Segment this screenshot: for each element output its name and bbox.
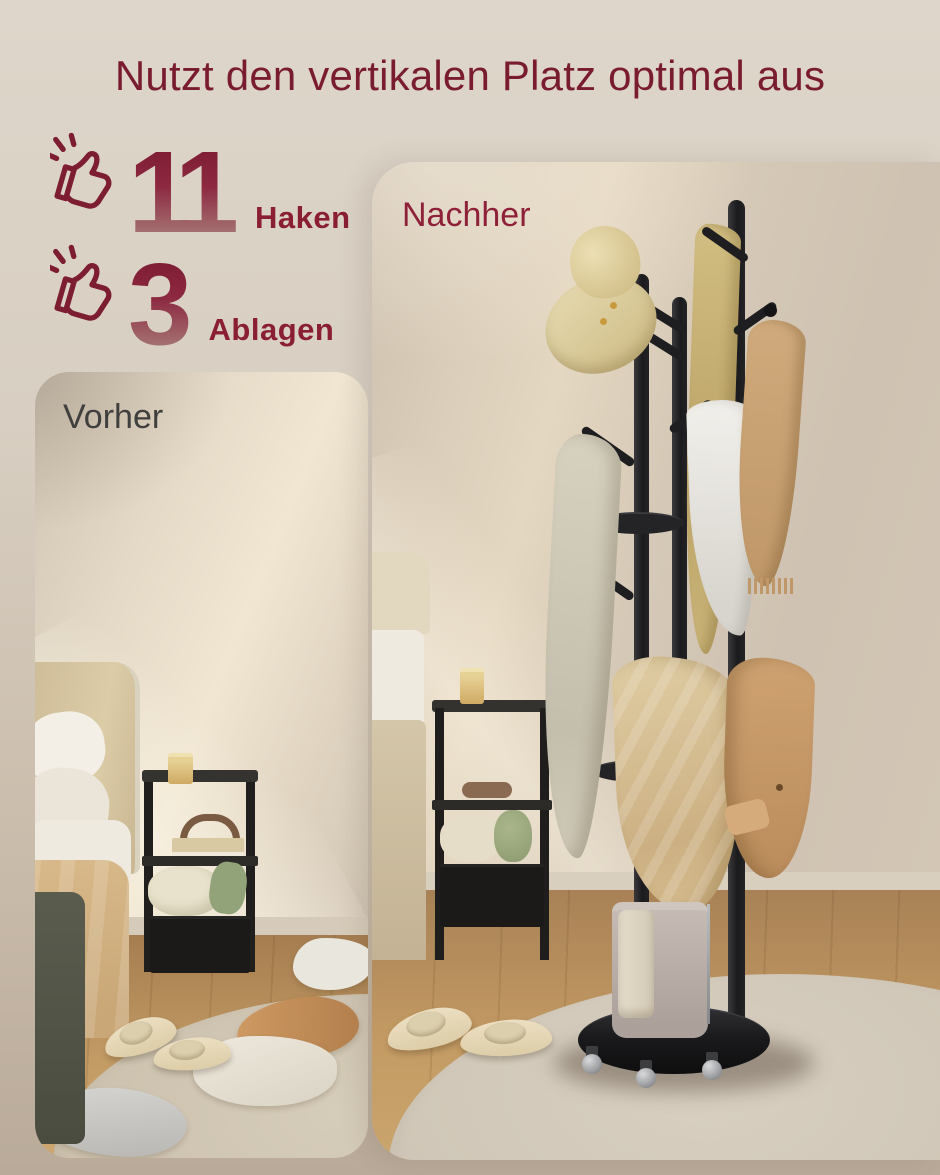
feature-shelves-count: 3 xyxy=(128,251,193,358)
book xyxy=(172,838,244,856)
nightstand-top xyxy=(142,770,258,782)
after-nightstand-shelf xyxy=(432,800,552,810)
headline: Nutzt den vertikalen Platz optimal aus xyxy=(0,52,940,100)
rack-hook-knob xyxy=(764,304,777,317)
coat-button xyxy=(776,784,783,791)
shelf-sandals xyxy=(462,782,512,798)
after-photo: Nachher xyxy=(372,162,940,1160)
before-photo: Vorher xyxy=(35,372,368,1158)
hat-buckle xyxy=(610,302,617,309)
feature-shelves-label: Ablagen xyxy=(209,312,335,348)
feature-hooks-count: 11 xyxy=(128,139,239,246)
bed-throw xyxy=(35,892,85,1144)
nightstand-drawer xyxy=(150,916,250,973)
caster-wheel xyxy=(636,1068,656,1088)
feature-shelves: 3 Ablagen xyxy=(50,240,334,358)
candle xyxy=(460,668,484,704)
before-wall-shadow xyxy=(35,372,235,532)
before-label: Vorher xyxy=(63,398,163,437)
candle xyxy=(168,753,193,784)
towel xyxy=(618,910,654,1018)
thumbs-up-icon xyxy=(50,240,114,332)
bed-corner-base xyxy=(372,720,426,960)
feature-hooks-label: Haken xyxy=(255,200,351,236)
caster-wheel xyxy=(582,1054,602,1074)
shelf-plant xyxy=(494,810,532,862)
shelf-pillow xyxy=(440,814,502,862)
product-banner: Nutzt den vertikalen Platz optimal aus 1… xyxy=(0,0,940,1175)
clothes-pile-white xyxy=(293,938,368,990)
after-nightstand-top xyxy=(432,700,552,712)
caster-wheel xyxy=(702,1060,722,1080)
bed-corner-cushion xyxy=(372,552,430,634)
feature-hooks: 11 Haken xyxy=(50,128,351,246)
after-nightstand-drawer xyxy=(440,864,544,927)
after-label: Nachher xyxy=(402,196,531,235)
hat-buckle xyxy=(600,318,607,325)
basket-frame-wire xyxy=(707,904,710,1024)
bed-corner-mattress xyxy=(372,630,424,724)
thumbs-up-icon xyxy=(50,128,114,220)
shawl-fringe xyxy=(748,578,794,594)
